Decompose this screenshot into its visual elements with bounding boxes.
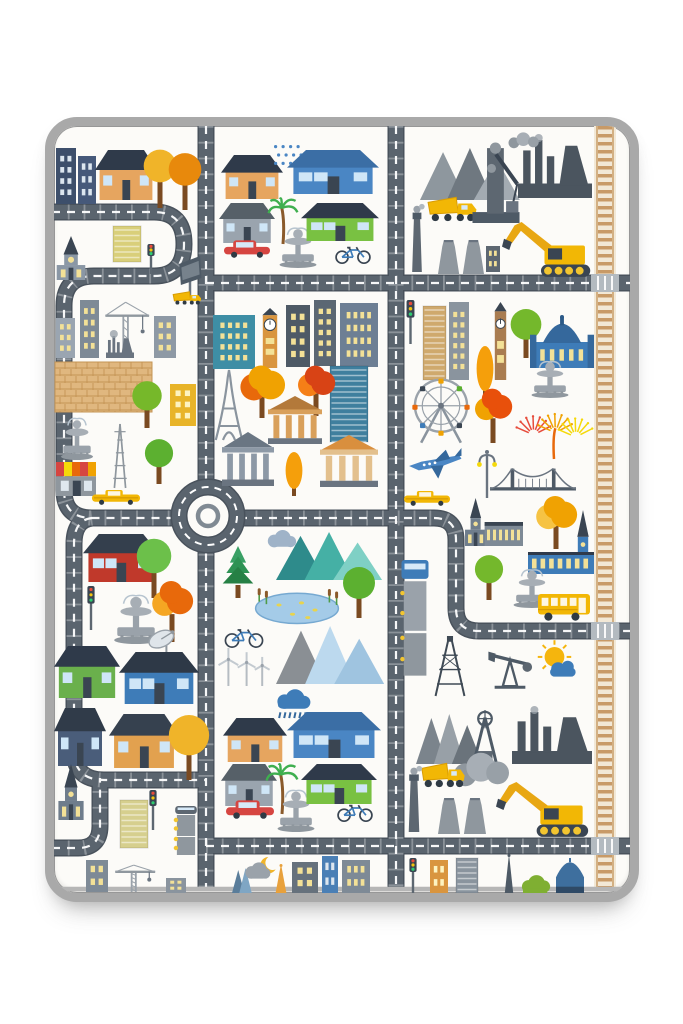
bicycle-3-icon [338,805,372,821]
green-tree-1-icon [132,381,161,428]
mining-truck-icon [428,197,476,221]
oil-pumpjack-icon [488,652,532,688]
traffic-light-3-icon [407,300,415,344]
navy-apartment-block-icon [56,148,76,204]
sky-cloud-moon-icon [245,856,280,879]
long-church-icon [465,498,523,546]
ferris-wheel-icon [412,379,469,443]
gray-cloud-icon [268,530,296,547]
yellow-taxi-2-icon [404,491,450,506]
hatch-building-small-icon [120,800,148,848]
teal-tower-icon [213,315,255,369]
railroad-crossing [591,837,619,855]
traffic-light-2-icon [87,586,94,630]
dark-tower-1-icon [286,305,310,367]
street-lamp-icon [477,450,497,498]
sky-dome-blue-icon [556,858,584,893]
yellow-excavator-top-icon [502,222,590,277]
dark-tower-2-icon [314,300,336,366]
palm-tree-1-icon [269,198,298,244]
play-mat [45,117,639,902]
construction-towers-yellow-icon [113,226,141,262]
orange-cypress-1-icon [286,452,303,496]
green-house-mid-icon [301,764,377,804]
cooling-towers-top-icon [438,240,484,274]
yellow-excavator-2-icon [496,782,588,837]
oil-derrick-icon [436,636,465,696]
antenna-tower-icon [113,424,126,488]
dark-blue-house-icon [54,708,106,766]
sky-tower-blue-icon [322,856,338,893]
small-factory-icon [106,330,134,358]
signal-pole-icon [149,790,156,830]
yellow-bulldozer-icon [173,292,201,305]
factory-bottom-icon [512,706,592,764]
clock-tower-orange-icon [262,308,277,368]
sky-bush-icon [522,875,550,893]
chimney-stack-2-icon [409,766,422,832]
striped-shop-icon [56,462,96,496]
railroad-crossing [591,622,619,640]
blue-gray-tower-icon [340,303,378,367]
utility-truck-icon [174,806,197,855]
eiffel-tower-icon [216,370,242,440]
gray-house-top-icon [219,203,275,243]
railroad-track [594,126,616,891]
sky-spire-dark-icon [505,854,513,893]
museum-beige-icon [320,435,378,487]
box-chimney-1-icon [486,246,500,272]
railroad-crossing [591,274,619,292]
office-tower-2-icon [80,300,99,358]
office-tower-1-icon [56,318,75,358]
sky-building-5-icon [430,860,448,893]
gray-tower-tall-icon [449,302,469,380]
suspension-bridge-icon [490,469,576,491]
blue-house-top-icon [287,150,379,194]
sky-building-4-icon [342,860,370,893]
green-tree-2-icon [145,439,173,484]
cargo-truck-icon [400,560,428,676]
green-tree-6-icon [343,567,375,618]
blue-house-dish-icon [119,652,199,704]
autumn-tree-2-icon [475,389,512,443]
sky-building-1-icon [86,860,108,892]
city-map [54,126,630,893]
smoke-top-icon [509,132,539,148]
navy-apartment-block-2-icon [78,156,96,204]
bank-gray-icon [222,432,274,486]
product-photo [0,0,683,1024]
fireworks-icon [515,413,593,459]
blue-house-mid-icon [287,712,381,758]
fish-lake-icon [256,588,339,623]
clock-church-icon [57,236,86,280]
bicycle-1-icon [336,247,370,263]
orange-house-top-icon [221,155,283,199]
sky-spire-orange-icon [276,864,287,893]
green-tree-5-icon [475,555,503,600]
orange-house-mid-icon [223,718,287,762]
gray-mountains-top-icon [420,148,520,200]
chimney-stack-icon [412,204,424,272]
orange-tree-2-icon [536,496,577,549]
yellow-building-icon [170,384,196,426]
sky-building-2-icon [166,878,186,893]
snow-mountains-icon [276,626,384,684]
gray-house-mid-icon [221,764,277,806]
orange-solar-house-icon [109,714,179,768]
yellow-bus-icon [538,594,590,621]
teal-hatch-tower-icon [330,366,368,442]
tan-hatch-tower-icon [423,306,446,380]
wind-turbines-icon [219,648,270,686]
green-house-top-icon [301,203,379,241]
sky-building-6-icon [456,858,478,893]
pine-tree-icon [223,546,254,598]
green-house-icon [54,646,120,698]
cooling-towers-2-icon [438,798,486,834]
office-tower-3-icon [154,316,176,358]
sun-cloud-icon [538,640,576,676]
yellow-taxi-1-icon [92,490,140,505]
sky-building-3-icon [292,862,318,893]
roundabout [179,487,237,545]
big-ben-icon [494,302,506,380]
blue-airplane-icon [409,448,461,479]
bicycle-2-icon [225,630,262,648]
orange-tree-icon [169,153,202,210]
